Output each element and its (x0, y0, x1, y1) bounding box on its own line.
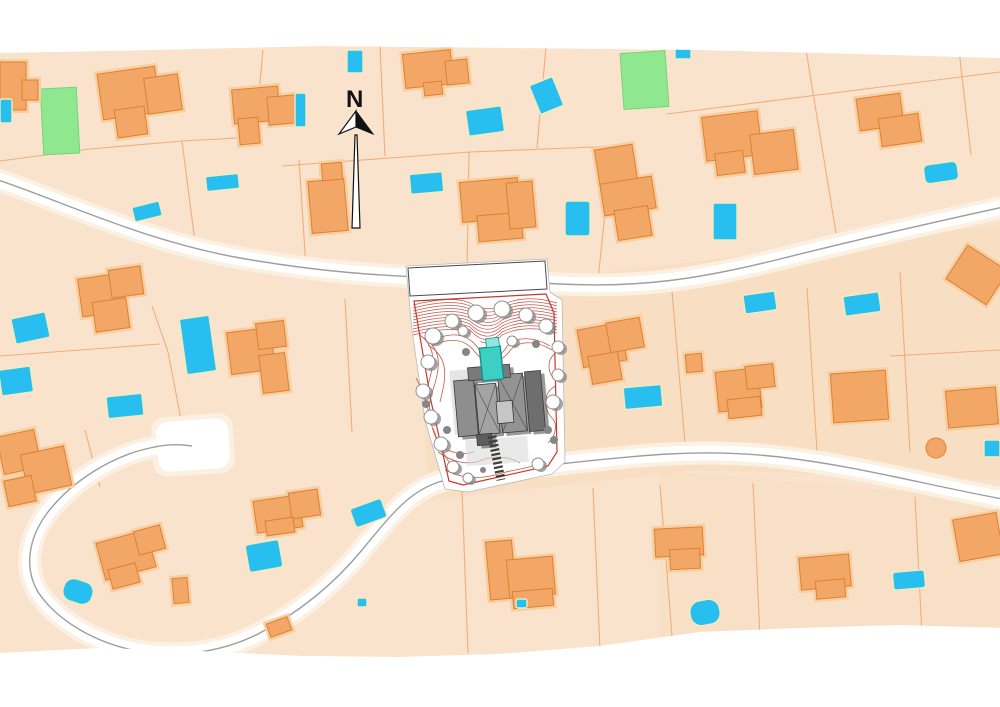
tree (539, 319, 553, 333)
swimming-pool (565, 201, 590, 236)
tree (445, 314, 459, 328)
tree (546, 395, 560, 409)
map-canvas: N (0, 0, 1000, 707)
bush (532, 340, 540, 348)
building (949, 509, 1000, 565)
building (942, 384, 1000, 432)
north-label: N (346, 86, 363, 113)
swimming-pool (843, 292, 881, 317)
swimming-pool (0, 366, 34, 396)
bush (456, 451, 464, 459)
bush (480, 467, 486, 473)
tree (421, 355, 435, 369)
tree (447, 461, 459, 473)
bush (544, 426, 552, 434)
swimming-pool (205, 173, 239, 191)
swimming-pool (347, 50, 363, 73)
swimming-pool (357, 598, 367, 607)
tree (519, 308, 533, 322)
lawn-area (620, 50, 669, 109)
tree (494, 301, 510, 317)
swimming-pool (743, 291, 777, 314)
site-building (496, 400, 514, 423)
tree (463, 473, 473, 483)
swimming-pool (245, 539, 283, 572)
round-feature (926, 438, 946, 458)
swimming-pool (713, 203, 737, 240)
site-building (477, 433, 493, 445)
site-pool-step (486, 337, 500, 347)
swimming-pool (465, 106, 504, 137)
swimming-pool (409, 172, 444, 195)
tree (434, 437, 448, 451)
tree (424, 410, 438, 424)
tree (532, 458, 544, 470)
swimming-pool (0, 99, 12, 123)
bush (443, 426, 451, 434)
tree (507, 336, 517, 346)
building (169, 574, 193, 607)
tree (458, 326, 468, 336)
tree (416, 384, 430, 398)
bush (462, 348, 470, 356)
swimming-pool (106, 393, 144, 419)
site-plan-map: N (0, 0, 1000, 707)
swimming-pool (516, 599, 527, 608)
swimming-pool (623, 384, 663, 409)
tree (552, 341, 564, 353)
swimming-pool (892, 570, 925, 591)
swimming-pool (295, 93, 306, 127)
building (682, 350, 706, 376)
building (827, 367, 892, 426)
lawn-area (40, 87, 79, 155)
tree (552, 369, 564, 381)
bush (550, 436, 558, 444)
tree (425, 328, 441, 344)
swimming-pool (923, 161, 959, 185)
site-pool (479, 346, 503, 381)
tree (468, 305, 484, 321)
bush (422, 400, 430, 408)
swimming-pool (984, 440, 1000, 457)
swimming-pool (675, 48, 691, 59)
